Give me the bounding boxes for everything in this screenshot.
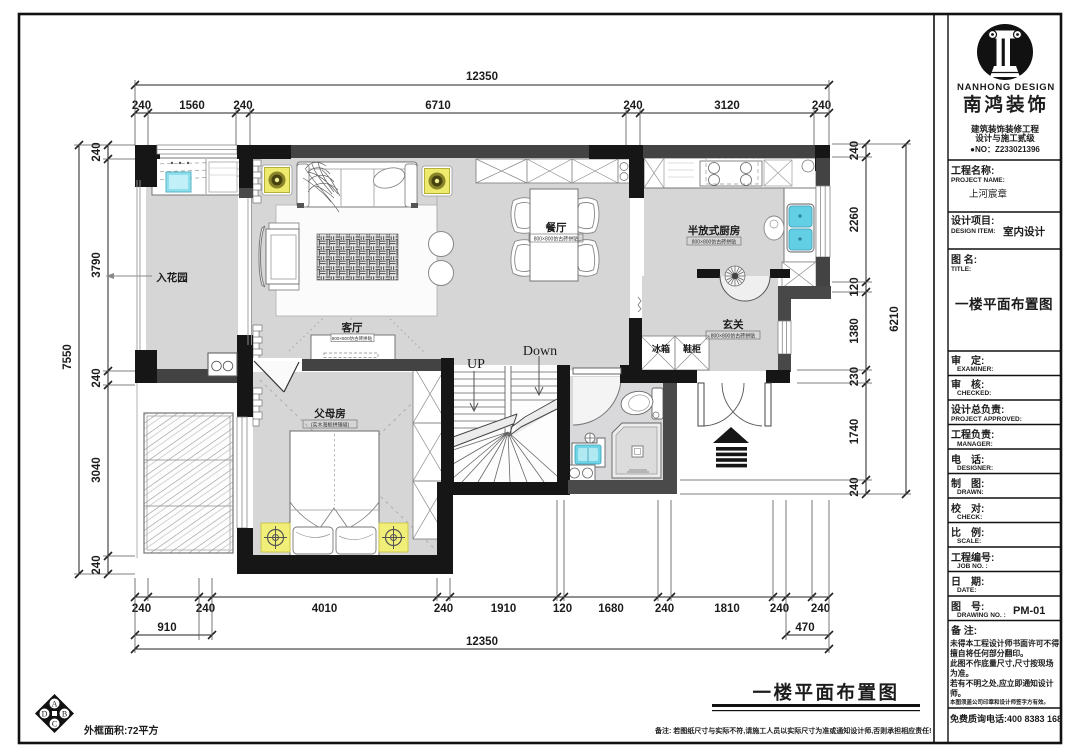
- svg-text:师。: 师。: [950, 688, 966, 698]
- svg-text:Down: Down: [523, 344, 557, 359]
- svg-text:未得本工程设计师书面许可不得: 未得本工程设计师书面许可不得: [949, 638, 1059, 648]
- svg-text:B: B: [62, 710, 67, 719]
- svg-text:6210: 6210: [889, 306, 901, 332]
- svg-text:备 注:: 备 注:: [950, 624, 977, 637]
- svg-text:CHECK:: CHECK:: [957, 514, 982, 521]
- svg-text:240: 240: [91, 555, 103, 574]
- svg-text:D: D: [42, 710, 48, 719]
- svg-text:DATE:: DATE:: [957, 587, 976, 594]
- svg-text:玄关: 玄关: [723, 318, 744, 331]
- svg-text:JOB NO. :: JOB NO. :: [957, 563, 988, 570]
- svg-text:1810: 1810: [714, 603, 740, 615]
- svg-text:C: C: [52, 720, 57, 729]
- svg-text:设计项目:: 设计项目:: [951, 214, 994, 227]
- svg-text:1680: 1680: [598, 603, 624, 615]
- svg-text:EXAMINER:: EXAMINER:: [957, 366, 993, 373]
- svg-text:240: 240: [91, 368, 103, 387]
- svg-text:1560: 1560: [179, 100, 205, 112]
- svg-text:PROJECT APPROVED:: PROJECT APPROVED:: [951, 416, 1022, 423]
- svg-text:上河宸章: 上河宸章: [969, 188, 1008, 200]
- svg-text:本图须盖公司印章和设计师签字方有效。: 本图须盖公司印章和设计师签字方有效。: [950, 698, 1049, 706]
- svg-text:800×800仿古砖拼贴: 800×800仿古砖拼贴: [332, 335, 373, 342]
- svg-text:此图不作底量尺寸,尺寸按现场: 此图不作底量尺寸,尺寸按现场: [950, 658, 1054, 668]
- svg-text:1380: 1380: [849, 318, 861, 344]
- svg-text:240: 240: [812, 100, 831, 112]
- svg-text:MANAGER:: MANAGER:: [957, 441, 993, 448]
- svg-text:为准。: 为准。: [950, 668, 973, 678]
- svg-text:(实木海板拼铺缝): (实木海板拼铺缝): [311, 422, 350, 429]
- svg-text:若有不明之处,应立即通知设计: 若有不明之处,应立即通知设计: [949, 678, 1054, 688]
- svg-text:餐厅: 餐厅: [545, 221, 567, 234]
- svg-text:12350: 12350: [466, 636, 498, 648]
- svg-text:3040: 3040: [91, 457, 103, 483]
- svg-text:4010: 4010: [312, 603, 338, 615]
- svg-text:●NO：Z233021396: ●NO：Z233021396: [970, 145, 1040, 154]
- svg-text:6710: 6710: [425, 100, 451, 112]
- svg-text:设计总负责:: 设计总负责:: [951, 403, 1004, 416]
- svg-text:120: 120: [553, 603, 572, 615]
- svg-text:半放式厨房: 半放式厨房: [688, 224, 741, 237]
- svg-text:3790: 3790: [91, 252, 103, 278]
- svg-text:备注: 若图纸尺寸与实际不符,请施工人员以实际尺寸为准或通知: 备注: 若图纸尺寸与实际不符,请施工人员以实际尺寸为准或通知设计师,否则承担相应…: [654, 726, 932, 735]
- svg-text:DESIGN ITEM:: DESIGN ITEM:: [951, 228, 995, 235]
- svg-text:7550: 7550: [62, 344, 74, 370]
- svg-text:工程名称:: 工程名称:: [951, 164, 994, 177]
- svg-text:父母房: 父母房: [313, 407, 346, 420]
- svg-text:470: 470: [795, 622, 814, 634]
- svg-text:800×800仿古砖拼贴: 800×800仿古砖拼贴: [534, 236, 579, 243]
- svg-text:800×800仿古砖拼贴: 800×800仿古砖拼贴: [692, 239, 737, 246]
- svg-text:240: 240: [434, 603, 453, 615]
- svg-text:室内设计: 室内设计: [1003, 225, 1045, 238]
- svg-text:1740: 1740: [849, 419, 861, 445]
- svg-text:外框面积:72平方: 外框面积:72平方: [83, 724, 158, 737]
- svg-text:240: 240: [655, 603, 674, 615]
- svg-text:1910: 1910: [491, 603, 517, 615]
- svg-text:3120: 3120: [714, 100, 740, 112]
- svg-text:120: 120: [849, 277, 861, 296]
- svg-text:冰箱: 冰箱: [652, 343, 670, 354]
- svg-text:TITLE:: TITLE:: [951, 266, 971, 273]
- svg-text:鞋柜: 鞋柜: [683, 343, 701, 354]
- svg-text:工程负责:: 工程负责:: [951, 428, 994, 441]
- svg-text:入花园: 入花园: [156, 271, 188, 284]
- svg-text:A: A: [52, 700, 58, 709]
- svg-text:240: 240: [811, 603, 830, 615]
- svg-text:PM-01: PM-01: [1013, 605, 1045, 617]
- svg-text:CHECKED:: CHECKED:: [957, 390, 991, 397]
- svg-text:客厅: 客厅: [341, 321, 363, 334]
- svg-text:UP: UP: [467, 357, 485, 372]
- svg-text:2260: 2260: [849, 207, 861, 233]
- svg-text:PROJECT NAME:: PROJECT NAME:: [951, 177, 1005, 184]
- svg-text:南鸿装饰: 南鸿装饰: [963, 94, 1049, 115]
- svg-text:一楼平面布置图: 一楼平面布置图: [955, 296, 1053, 312]
- svg-text:免费质询电话:400 8383 168: 免费质询电话:400 8383 168: [950, 713, 1062, 724]
- svg-text:SCALE:: SCALE:: [957, 538, 981, 545]
- svg-text:800×800仿古砖拼贴: 800×800仿古砖拼贴: [711, 333, 756, 340]
- svg-text:12350: 12350: [466, 71, 498, 83]
- svg-text:设计与施工贰级: 设计与施工贰级: [975, 133, 1035, 143]
- svg-text:DRAWN:: DRAWN:: [957, 489, 984, 496]
- svg-text:图 名:: 图 名:: [951, 253, 977, 266]
- svg-text:NANHONG DESIGN: NANHONG DESIGN: [957, 82, 1055, 93]
- svg-text:DESIGNER:: DESIGNER:: [957, 465, 993, 472]
- svg-text:一楼平面布置图: 一楼平面布置图: [752, 682, 899, 703]
- svg-text:DRAWING NO. :: DRAWING NO. :: [957, 612, 1006, 619]
- svg-text:910: 910: [157, 622, 176, 634]
- svg-text:擅自将任何部分翻印。: 擅自将任何部分翻印。: [950, 648, 1028, 658]
